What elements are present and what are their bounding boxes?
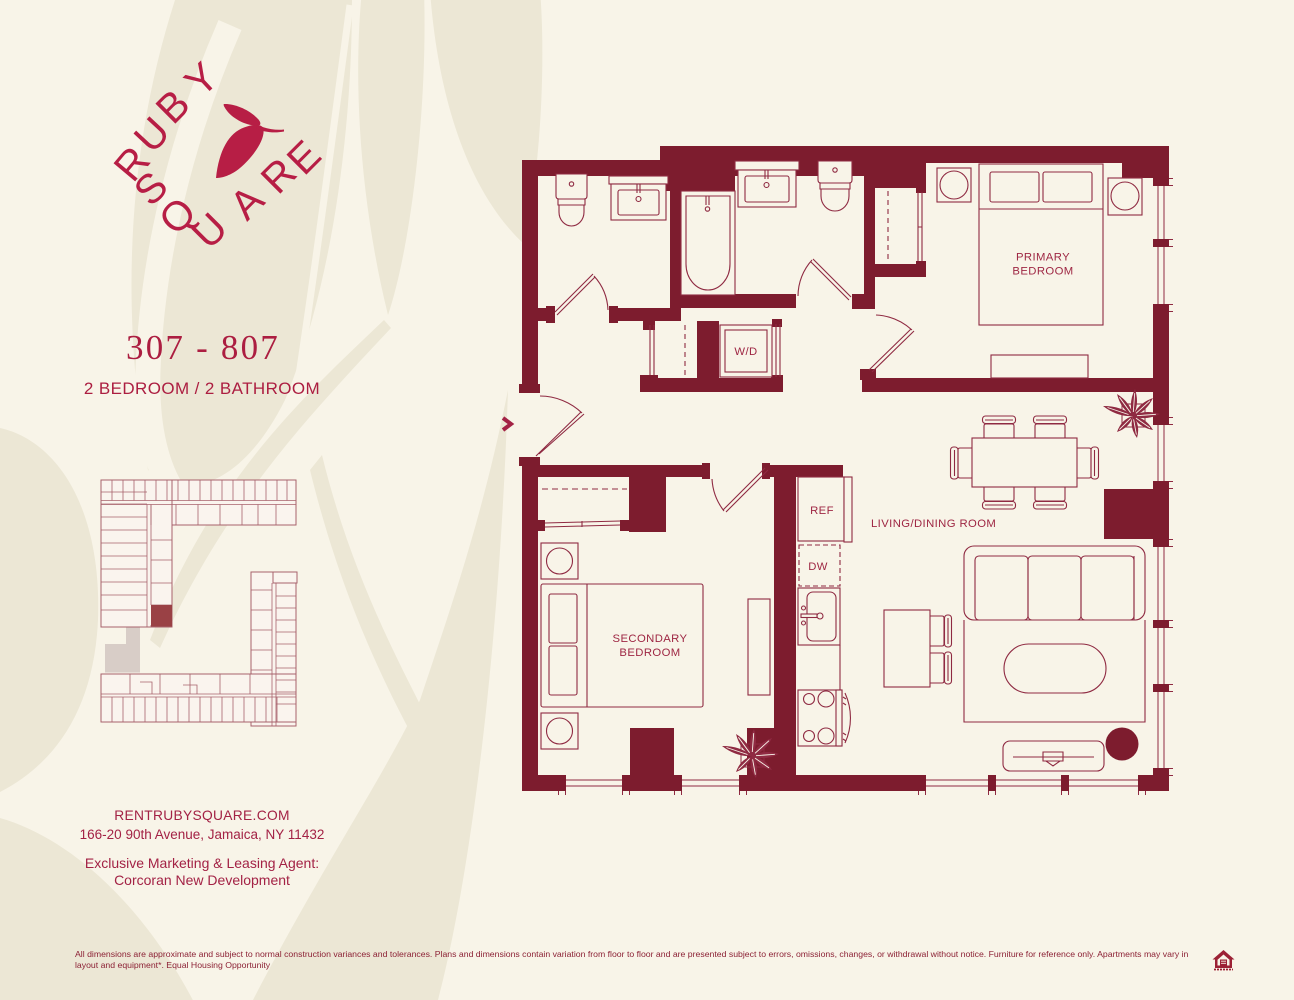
svg-text:All dimensions are approximate: All dimensions are approximate and subje… bbox=[75, 949, 1189, 959]
svg-text:LIVING/DINING ROOM: LIVING/DINING ROOM bbox=[871, 518, 996, 530]
svg-text:layout and equipment*. Equal H: layout and equipment*. Equal Housing Opp… bbox=[75, 960, 271, 970]
svg-text:2 BEDROOM / 2 BATHROOM: 2 BEDROOM / 2 BATHROOM bbox=[84, 379, 320, 398]
svg-text:PRIMARY: PRIMARY bbox=[1016, 252, 1070, 264]
svg-text:RENTRUBYSQUARE.COM: RENTRUBYSQUARE.COM bbox=[114, 808, 290, 823]
svg-text:Exclusive Marketing & Leasing: Exclusive Marketing & Leasing Agent: bbox=[85, 855, 319, 871]
svg-text:166-20 90th Avenue, Jamaica, N: 166-20 90th Avenue, Jamaica, NY 11432 bbox=[80, 827, 325, 842]
svg-text:W/D: W/D bbox=[734, 346, 757, 358]
svg-text:SECONDARY: SECONDARY bbox=[613, 633, 688, 645]
svg-text:BEDROOM: BEDROOM bbox=[1012, 266, 1073, 278]
svg-text:DW: DW bbox=[808, 561, 828, 573]
svg-text:307 - 807: 307 - 807 bbox=[126, 328, 280, 367]
svg-text:REF: REF bbox=[810, 505, 834, 517]
svg-text:Corcoran New Development: Corcoran New Development bbox=[114, 872, 290, 888]
svg-text:BEDROOM: BEDROOM bbox=[619, 647, 680, 659]
